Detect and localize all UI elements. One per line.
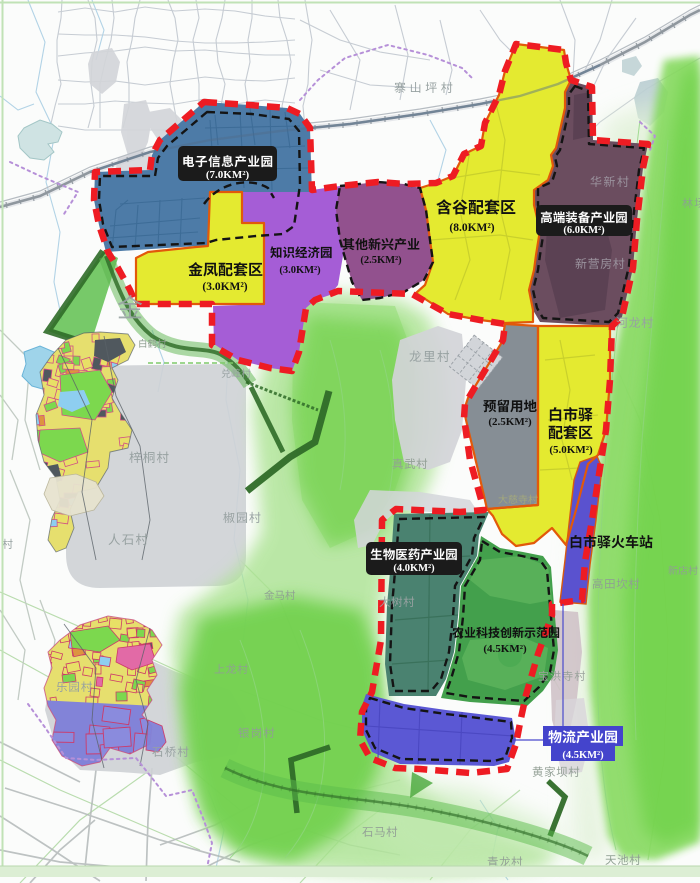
svg-text:(3.0KM²): (3.0KM²) [202,281,247,293]
svg-text:(3.0KM²): (3.0KM²) [279,265,321,276]
svg-text:(4.5KM²): (4.5KM²) [483,643,527,655]
svg-text:(4.5KM²): (4.5KM²) [562,750,604,761]
svg-text:(6.0KM²): (6.0KM²) [563,225,605,236]
svg-text:(8.0KM²): (8.0KM²) [449,222,494,234]
svg-text:(7.0KM²): (7.0KM²) [206,169,250,181]
svg-text:(2.5KM²): (2.5KM²) [360,255,402,266]
svg-text:(5.0KM²): (5.0KM²) [549,444,593,456]
svg-text:(2.5KM²): (2.5KM²) [488,416,532,428]
svg-text:(4.0KM²): (4.0KM²) [393,563,435,574]
